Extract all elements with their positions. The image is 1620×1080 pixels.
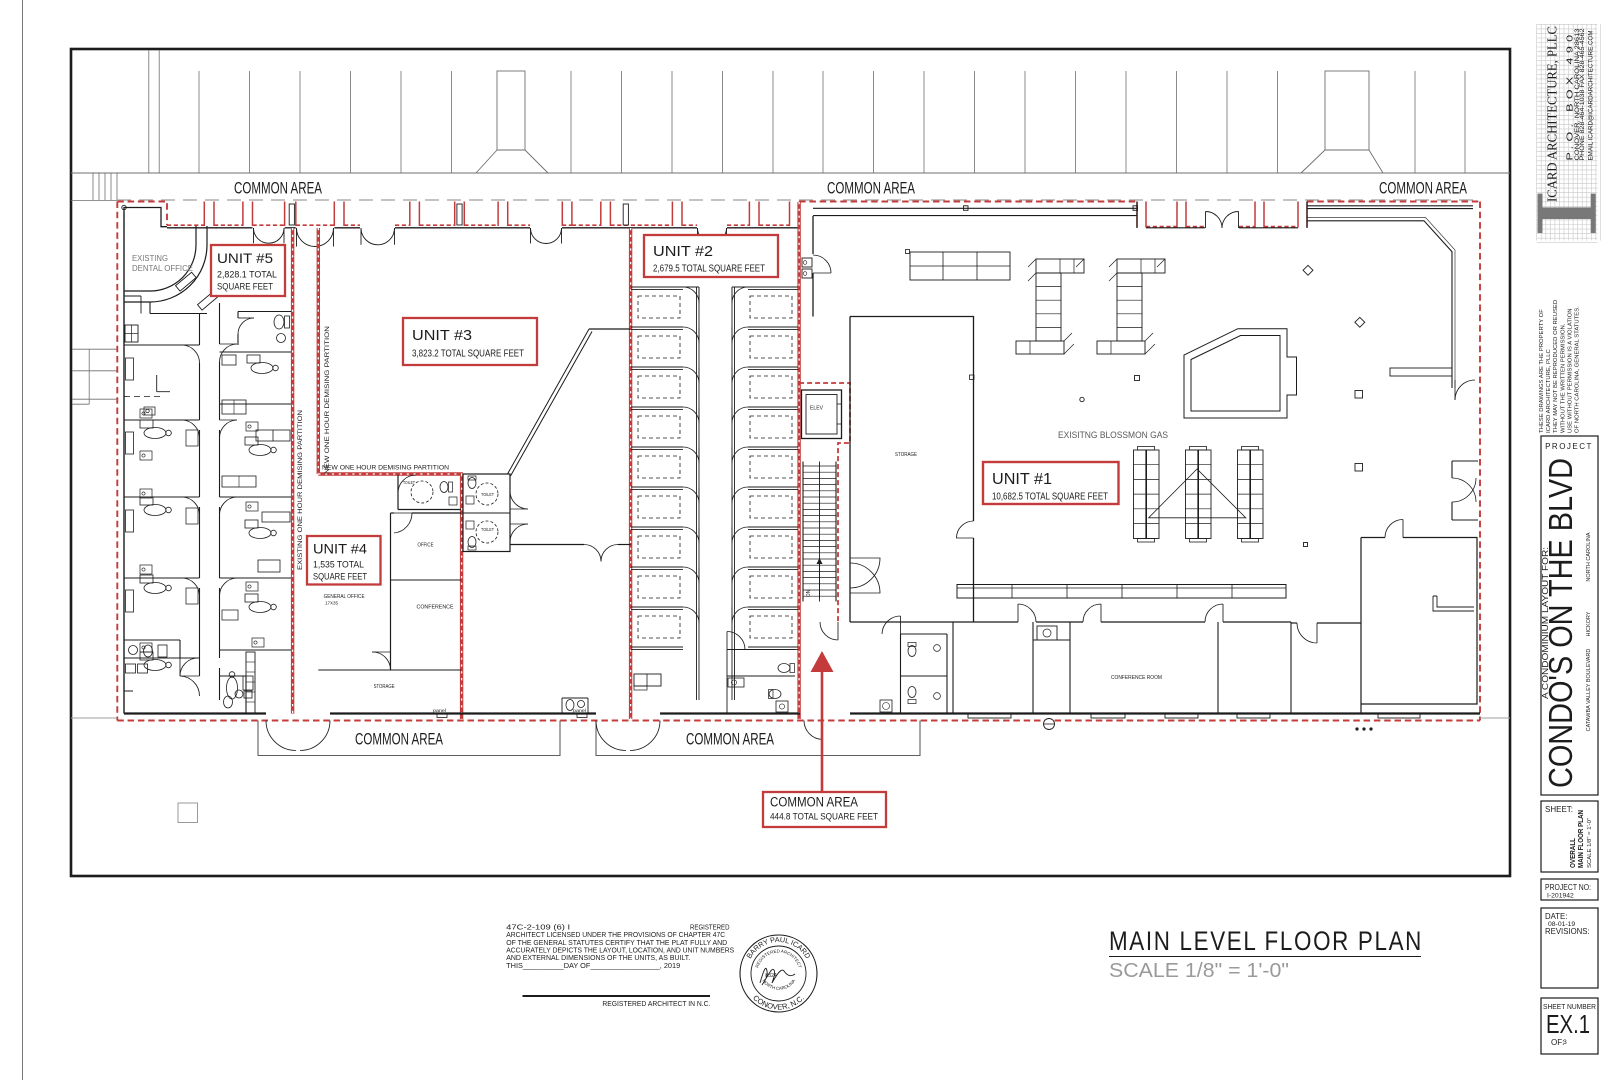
svg-text:MAIN FLOOR PLAN: MAIN FLOOR PLAN [1576,810,1585,868]
svg-text:UNIT #2: UNIT #2 [653,243,713,260]
svg-text:10,682.5 TOTAL SQUARE FEET: 10,682.5 TOTAL SQUARE FEET [992,492,1108,503]
svg-text:STORAGE: STORAGE [895,452,917,458]
svg-text:PROJECT NO:: PROJECT NO: [1545,883,1591,892]
svg-text:COMMON AREA: COMMON AREA [1379,179,1467,198]
svg-text:DN: DN [806,589,812,597]
svg-text:SQUARE FEET: SQUARE FEET [313,572,367,583]
svg-text:THESE DRAWINGS ARE THE PROPERT: THESE DRAWINGS ARE THE PROPERTY OF [1539,309,1545,433]
svg-text:CATAWBA VALLEY BOULEVARD: CATAWBA VALLEY BOULEVARD [1586,649,1592,732]
svg-text:NEW ONE HOUR DEMISING PARTITIO: NEW ONE HOUR DEMISING PARTITION [322,465,449,472]
svg-text:17X35: 17X35 [325,601,338,606]
svg-text:EXISITNG BLOSSMON GAS: EXISITNG BLOSSMON GAS [1058,430,1168,440]
svg-text:panel: panel [433,708,446,713]
svg-text:SHEET:: SHEET: [1545,805,1573,814]
svg-text:2,679.5 TOTAL SQUARE FEET: 2,679.5 TOTAL SQUARE FEET [653,264,765,275]
svg-text:DATE:: DATE: [1545,912,1567,921]
svg-text:UNIT #4: UNIT #4 [313,542,368,557]
svg-text:EXISTING ONE HOUR DEMISING PAR: EXISTING ONE HOUR DEMISING PARTITION [297,410,304,570]
svg-text:1,535 TOTAL: 1,535 TOTAL [313,560,365,571]
svg-text:USE WITHOUT PERMISSION IS A VI: USE WITHOUT PERMISSION IS A VIOLATION [1567,309,1573,434]
svg-text:COMMON AREA: COMMON AREA [770,795,858,810]
svg-text:ICARD ARCHITECTURE, PLLC: ICARD ARCHITECTURE, PLLC [1545,26,1560,202]
svg-text:EXISTING: EXISTING [132,254,168,263]
svg-text:OF NORTH CAROLINA, GENERAL STA: OF NORTH CAROLINA, GENERAL STATUTES. [1575,306,1581,433]
svg-text:PROJECT: PROJECT [1545,442,1593,451]
svg-text:REGISTERED: REGISTERED [690,922,730,931]
svg-text:MAIN LEVEL FLOOR PLAN: MAIN LEVEL FLOOR PLAN [1109,926,1423,956]
svg-text:2,828.1 TOTAL: 2,828.1 TOTAL [217,270,278,281]
svg-text:EX.1: EX.1 [1546,1009,1590,1039]
svg-text:REVISIONS:: REVISIONS: [1545,927,1590,936]
svg-text:444.8 TOTAL SQUARE FEET: 444.8 TOTAL SQUARE FEET [770,812,878,822]
svg-text:STORAGE: STORAGE [374,684,395,690]
svg-text:PHONE 828-464-1038 FAX 828-46: PHONE 828-464-1038 FAX 828-465-4562 [1580,28,1586,161]
svg-text:WITHOUT THE WRITTEN PERMISSION: WITHOUT THE WRITTEN PERMISSION. [1560,323,1566,433]
svg-text:ELEV: ELEV [810,406,824,412]
svg-text:CONFERENCE: CONFERENCE [417,605,455,611]
svg-text:THIS__________DAY OF__________: THIS__________DAY OF_________________, 2… [506,961,680,970]
svg-text:panel: panel [573,708,586,713]
svg-text:CONFERENCE ROOM: CONFERENCE ROOM [1111,675,1162,681]
svg-text:SCALE 1/8" = 1'-0": SCALE 1/8" = 1'-0" [1109,960,1289,982]
svg-text:TOILET: TOILET [481,527,494,532]
svg-text:UNIT #5: UNIT #5 [217,250,273,266]
svg-text:A CONDOMINIUM LAYOUT FOR:: A CONDOMINIUM LAYOUT FOR: [1541,547,1550,699]
svg-text:SCALE 1/8" = 1'-0": SCALE 1/8" = 1'-0" [1587,818,1593,868]
svg-text:COMMON AREA: COMMON AREA [355,730,443,749]
svg-text:NORTH CAROLINA: NORTH CAROLINA [1586,532,1592,581]
svg-text:OFFICE: OFFICE [418,543,434,549]
svg-text:NEW ONE HOUR DEMISING PARTITIO: NEW ONE HOUR DEMISING PARTITION [324,326,331,474]
svg-text:GENERAL OFFICE: GENERAL OFFICE [324,594,365,600]
svg-text:3,823.2 TOTAL SQUARE FEET: 3,823.2 TOTAL SQUARE FEET [412,349,524,360]
svg-text:ICARD ARCHITECTURE, PLLC: ICARD ARCHITECTURE, PLLC [1546,348,1552,433]
svg-text:UNIT #1: UNIT #1 [992,471,1052,488]
svg-text:DENTAL OFFICE: DENTAL OFFICE [132,264,193,273]
svg-text:3: 3 [1563,1039,1567,1046]
svg-text:TOILET: TOILET [481,492,494,497]
svg-text:COMMON AREA: COMMON AREA [234,179,322,198]
svg-text:COMMON AREA: COMMON AREA [827,179,915,198]
svg-text:REGISTERED ARCHITECT IN N.C.: REGISTERED ARCHITECT IN N.C. [602,999,710,1008]
svg-text:I-201942: I-201942 [1547,893,1574,900]
svg-text:TOILET: TOILET [403,480,415,486]
svg-text:COMMON AREA: COMMON AREA [686,730,774,749]
svg-text:UNIT #3: UNIT #3 [412,327,472,344]
svg-text:THEY MAY NOT BE REPRODUCED OR: THEY MAY NOT BE REPRODUCED OR REUSED [1553,300,1559,433]
svg-text:HICKORY: HICKORY [1586,611,1592,636]
svg-text:EMAIL ICARD@ICARDARCHITECTURE: EMAIL ICARD@ICARDARCHITECTURE.COM [1589,31,1595,161]
svg-text:SQUARE FEET: SQUARE FEET [217,282,273,293]
